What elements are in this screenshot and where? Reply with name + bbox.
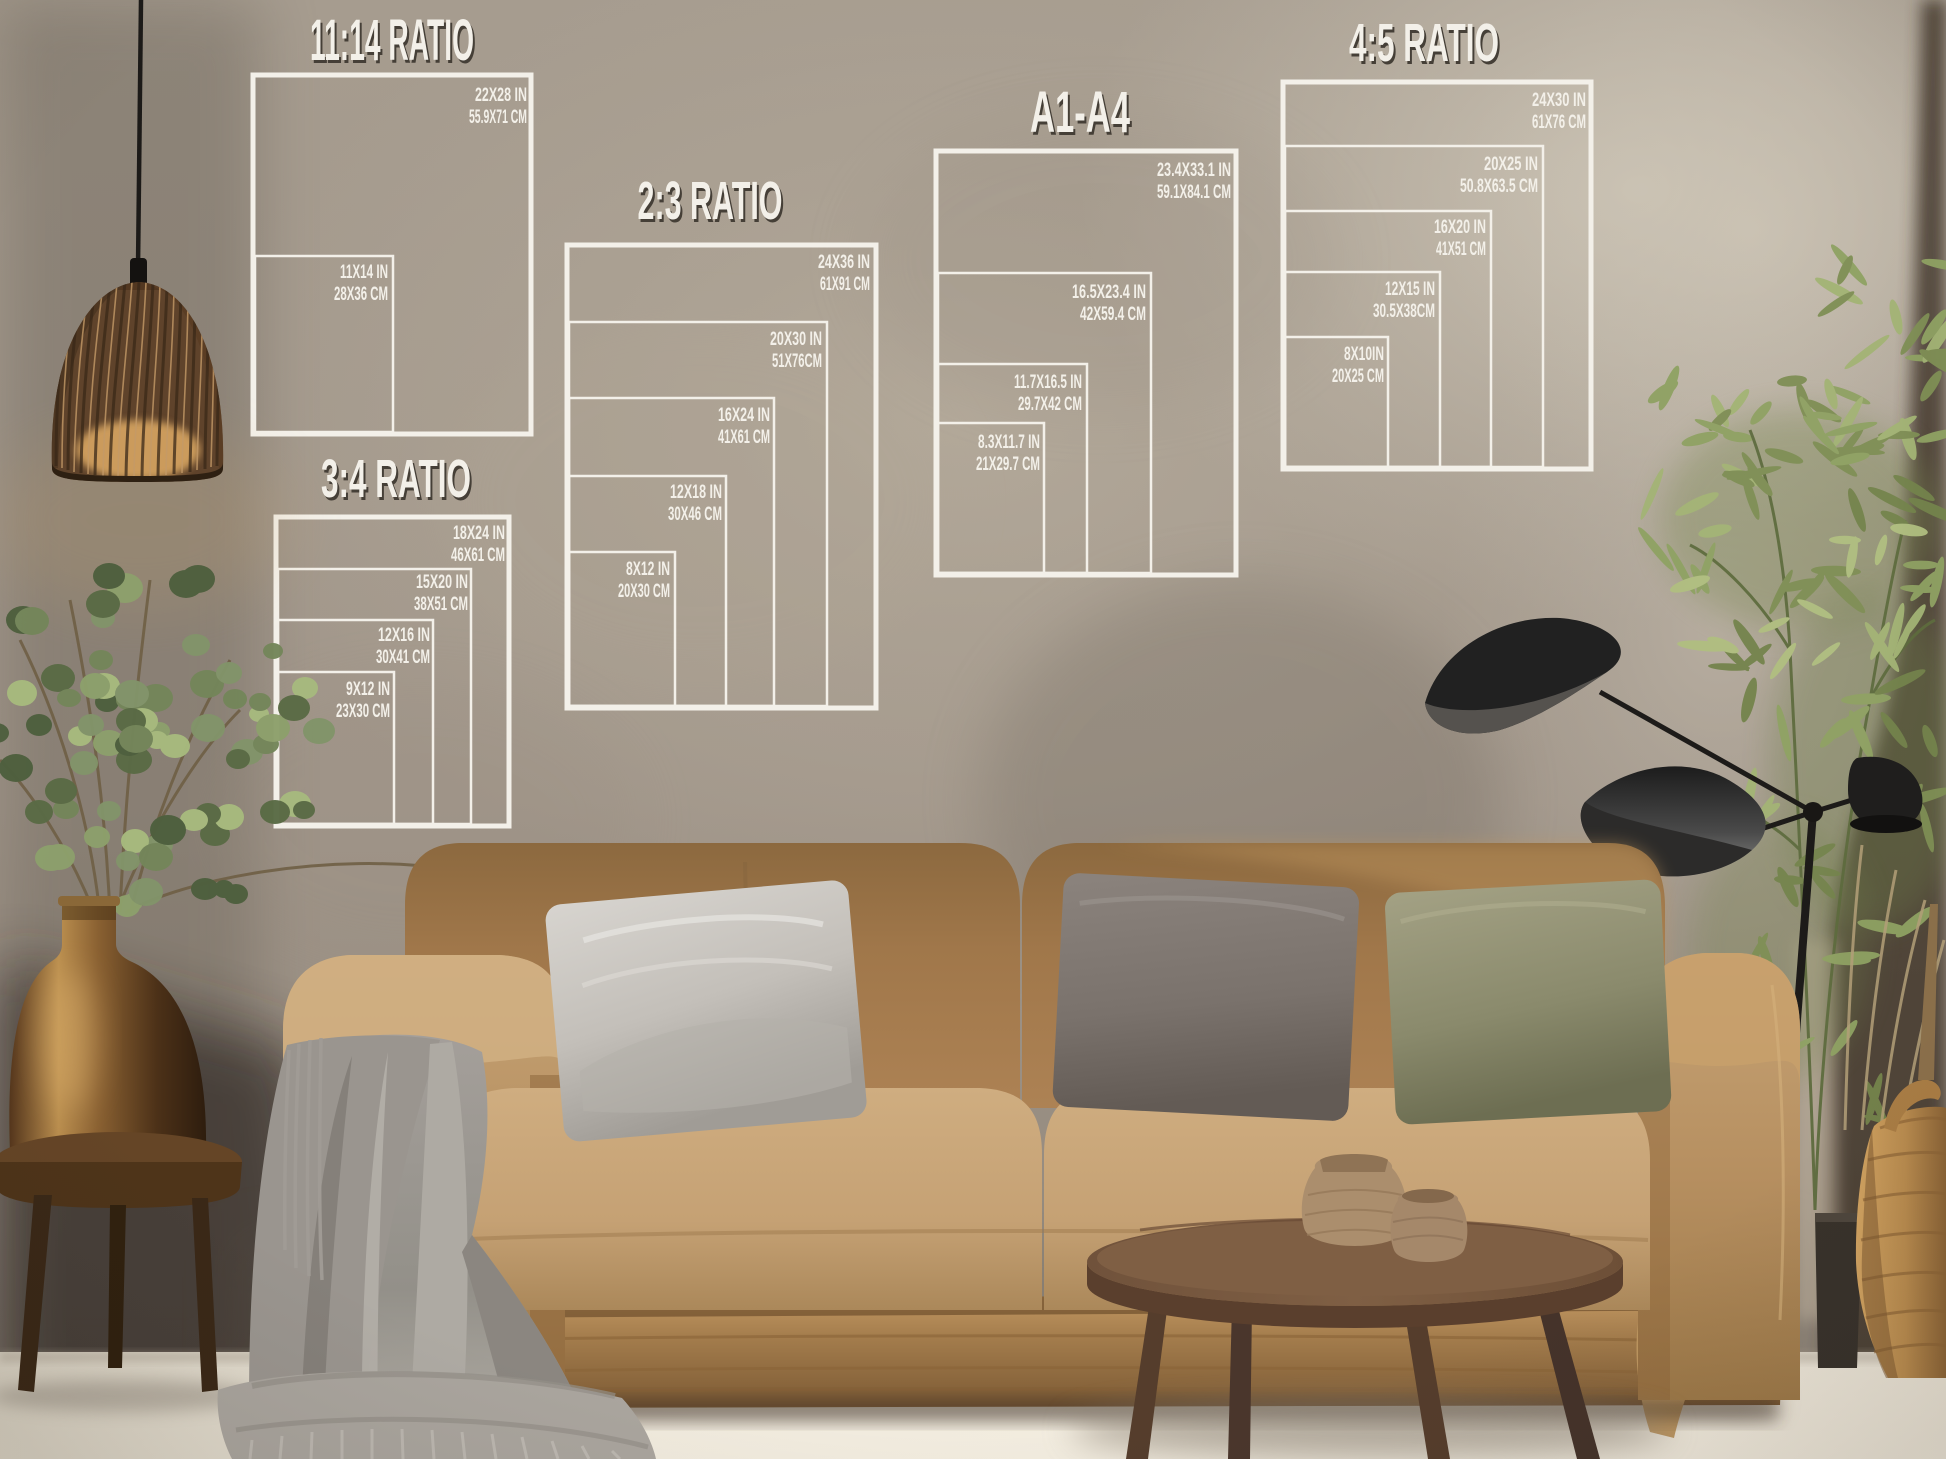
svg-text:16X24 IN: 16X24 IN	[718, 405, 770, 426]
svg-text:22X28 IN: 22X28 IN	[475, 85, 527, 106]
svg-text:9X12 IN: 9X12 IN	[346, 679, 390, 700]
svg-text:12X16 IN: 12X16 IN	[378, 625, 430, 646]
svg-text:20X25 IN: 20X25 IN	[1484, 154, 1538, 175]
svg-text:50.8X63.5 CM: 50.8X63.5 CM	[1460, 176, 1538, 197]
svg-text:24X36 IN: 24X36 IN	[818, 252, 870, 273]
svg-text:51X76CM: 51X76CM	[772, 351, 822, 372]
svg-text:16.5X23.4 IN: 16.5X23.4 IN	[1072, 282, 1146, 303]
svg-text:11X14 IN: 11X14 IN	[340, 262, 388, 283]
svg-text:38X51 CM: 38X51 CM	[414, 594, 468, 615]
svg-text:8.3X11.7 IN: 8.3X11.7 IN	[978, 432, 1040, 453]
svg-text:24X30 IN: 24X30 IN	[1532, 90, 1586, 111]
svg-text:2:3 RATIO: 2:3 RATIO	[638, 171, 783, 231]
svg-text:12X15 IN: 12X15 IN	[1385, 279, 1435, 300]
svg-text:8X10IN: 8X10IN	[1344, 344, 1384, 365]
svg-text:20X30 CM: 20X30 CM	[618, 581, 670, 602]
svg-text:18X24 IN: 18X24 IN	[453, 523, 505, 544]
svg-text:61X91 CM: 61X91 CM	[820, 274, 870, 295]
svg-text:28X36 CM: 28X36 CM	[334, 284, 388, 305]
svg-text:30X41 CM: 30X41 CM	[376, 647, 430, 668]
svg-text:4:5 RATIO: 4:5 RATIO	[1349, 13, 1499, 73]
svg-text:20X30 IN: 20X30 IN	[770, 329, 822, 350]
svg-text:61X76 CM: 61X76 CM	[1532, 112, 1586, 133]
svg-text:23.4X33.1 IN: 23.4X33.1 IN	[1157, 160, 1231, 181]
svg-text:30X46 CM: 30X46 CM	[668, 504, 722, 525]
svg-text:42X59.4 CM: 42X59.4 CM	[1080, 304, 1146, 325]
svg-text:A1-A4: A1-A4	[1030, 80, 1130, 145]
svg-text:12X18 IN: 12X18 IN	[670, 482, 722, 503]
svg-text:16X20 IN: 16X20 IN	[1434, 217, 1486, 238]
svg-text:20X25 CM: 20X25 CM	[1332, 366, 1384, 387]
svg-text:21X29.7 CM: 21X29.7 CM	[976, 454, 1040, 475]
svg-text:23X30 CM: 23X30 CM	[336, 701, 390, 722]
svg-text:59.1X84.1 CM: 59.1X84.1 CM	[1157, 182, 1231, 203]
svg-text:11:14 RATIO: 11:14 RATIO	[310, 8, 474, 73]
svg-text:3:4 RATIO: 3:4 RATIO	[321, 449, 471, 509]
svg-text:15X20 IN: 15X20 IN	[416, 572, 468, 593]
svg-text:29.7X42 CM: 29.7X42 CM	[1018, 394, 1082, 415]
svg-text:11.7X16.5 IN: 11.7X16.5 IN	[1014, 372, 1082, 393]
svg-text:46X61 CM: 46X61 CM	[451, 545, 505, 566]
svg-text:8X12 IN: 8X12 IN	[626, 559, 670, 580]
svg-text:41X51 CM: 41X51 CM	[1436, 239, 1486, 260]
svg-text:55.9X71 CM: 55.9X71 CM	[469, 107, 527, 128]
svg-text:30.5X38CM: 30.5X38CM	[1373, 301, 1435, 322]
svg-text:41X61 CM: 41X61 CM	[718, 427, 770, 448]
